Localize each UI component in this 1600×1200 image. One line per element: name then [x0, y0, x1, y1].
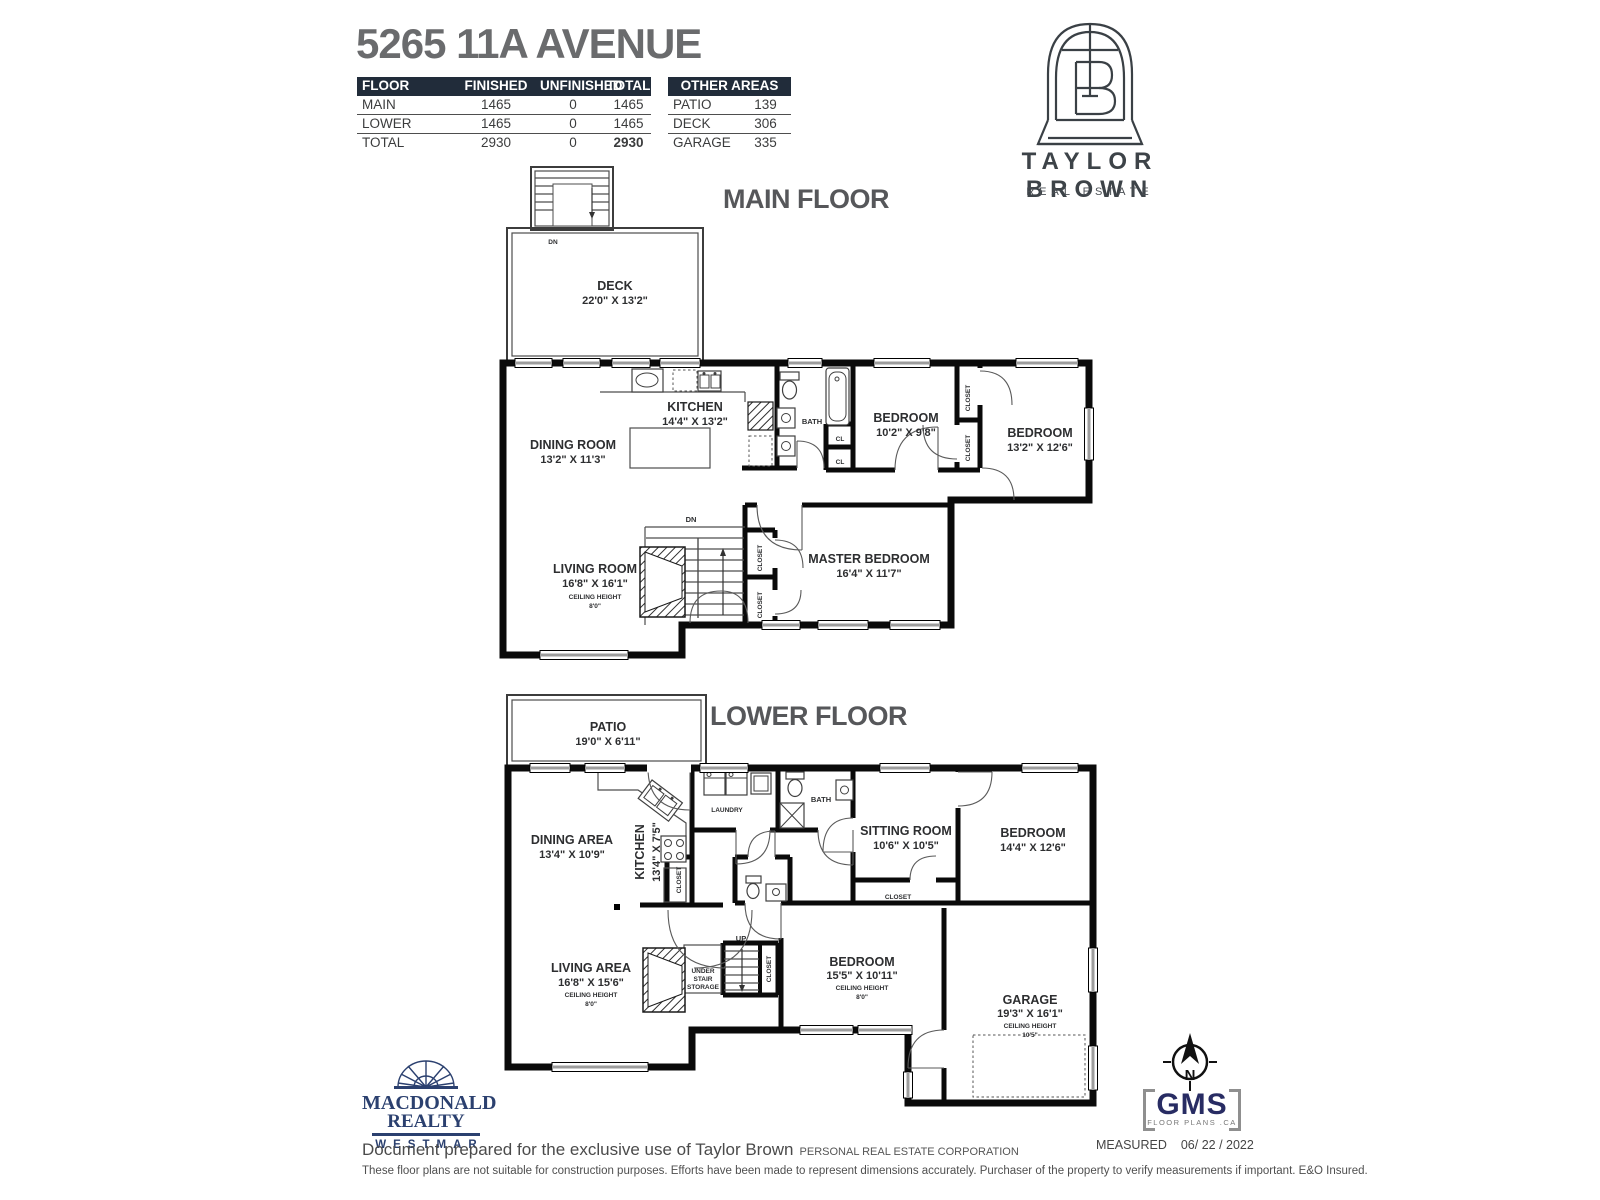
gms-name: GMS — [1147, 1089, 1237, 1121]
gms-bracket-left — [1143, 1089, 1155, 1131]
lower-interior-walls — [640, 768, 1093, 1103]
dining-room-dims: 13'2" X 11'3" — [540, 454, 605, 466]
closet-label: CLOSET — [965, 385, 972, 411]
main-windows — [515, 359, 1094, 660]
master-bedroom-dims: 16'4" X 11'7" — [836, 568, 901, 580]
table-row: MAIN 1465 0 1465 — [357, 96, 651, 115]
sitting-room-dims: 10'6" X 10'5" — [873, 840, 939, 852]
deck-label: DECK — [597, 279, 632, 293]
garage-door-area — [973, 1035, 1085, 1097]
patio-label: PATIO — [590, 720, 627, 734]
taylor-brown-logo-icon — [1020, 12, 1220, 152]
macdonald-rule — [372, 1133, 480, 1136]
bedroom-dims: 10'2" X 9'8" — [876, 427, 936, 439]
closet-label: CL — [836, 459, 845, 466]
main-interior-walls — [742, 363, 980, 625]
main-outer-walls — [503, 363, 1089, 655]
gms-logo: GMS FLOOR PLANS .CA — [1147, 1089, 1237, 1135]
under-stair-label: UNDER — [691, 968, 714, 975]
lower-windows — [530, 764, 1098, 1099]
deck-dims: 22'0" X 13'2" — [582, 295, 648, 307]
master-bedroom-label: MASTER BEDROOM — [808, 552, 930, 566]
fireplace-icon — [643, 948, 685, 1012]
ceiling-height-label: CEILING HEIGHT — [836, 985, 889, 992]
closet-label: CLOSET — [757, 592, 764, 618]
fireplace-icon — [640, 547, 685, 617]
closet-label: CLOSET — [766, 956, 773, 982]
ceiling-height-label: CEILING HEIGHT — [1004, 1023, 1057, 1030]
dining-area-dims: 13'4" X 10'9" — [539, 849, 605, 861]
north-compass-icon: N — [1160, 1025, 1222, 1097]
gms-bracket-right — [1229, 1089, 1241, 1131]
closet-label: CLOSET — [676, 867, 683, 893]
table-row: DECK 306 — [668, 115, 791, 134]
floor-plan-document: 5265 11A AVENUE FLOOR FINISHED UNFINISHE… — [0, 0, 1600, 1200]
bath-label: BATH — [802, 417, 822, 426]
measured-date: MEASURED06/ 22 / 2022 — [1096, 1138, 1254, 1152]
bedroom-dims: 14'4" X 12'6" — [1000, 842, 1066, 854]
laundry-label: LAUNDRY — [711, 807, 743, 814]
garage-label: GARAGE — [1003, 993, 1058, 1007]
other-areas-table-header: OTHER AREAS — [668, 77, 791, 96]
bedroom-label: BEDROOM — [1007, 426, 1072, 440]
kitchen-label: KITCHEN — [633, 824, 647, 880]
sitting-room-label: SITTING ROOM — [860, 824, 952, 838]
table-row: LOWER 1465 0 1465 — [357, 115, 651, 134]
macdonald-fan-icon — [362, 1057, 490, 1089]
main-floor-plan: DN DECK 22'0" X 13'2" KITCHEN 14'4" X 13… — [490, 160, 1110, 665]
living-room-dims: 16'8" X 16'1" — [562, 578, 628, 590]
disclaimer-line: These floor plans are not suitable for c… — [362, 1165, 1368, 1177]
kitchen-dims: 13'4" X 7'5" — [651, 822, 663, 882]
gms-subtitle: FLOOR PLANS .CA — [1147, 1118, 1237, 1127]
patio-dims: 19'0" X 6'11" — [575, 736, 640, 748]
table-row: GARAGE 335 — [668, 134, 791, 152]
svg-text:N: N — [1185, 1067, 1196, 1084]
page-title: 5265 11A AVENUE — [356, 20, 701, 68]
living-room-label: LIVING ROOM — [553, 562, 637, 576]
ceiling-height-value: 10'5" — [1022, 1032, 1037, 1039]
ceiling-height-value: 8'0" — [585, 1001, 597, 1008]
closet-label: CLOSET — [965, 435, 972, 461]
ceiling-height-label: CEILING HEIGHT — [569, 594, 622, 601]
closet-label: CL — [836, 436, 845, 443]
ceiling-height-value: 8'0" — [856, 994, 868, 1001]
bath-label: BATH — [811, 795, 831, 804]
prepared-for-line: Document prepared for the exclusive use … — [362, 1140, 1019, 1160]
garage-dims: 19'3" X 16'1" — [997, 1008, 1063, 1020]
macdonald-realty-logo: MACDONALD REALTY WESTMAR — [362, 1057, 490, 1151]
prepared-note: PERSONAL REAL ESTATE CORPORATION — [800, 1146, 1019, 1158]
under-stair-label: STAIR — [693, 976, 712, 983]
living-area-label: LIVING AREA — [551, 961, 631, 975]
dining-area-label: DINING AREA — [531, 833, 613, 847]
under-stair-label: STORAGE — [687, 984, 720, 991]
macdonald-line2: REALTY — [362, 1113, 490, 1131]
dining-room-label: DINING ROOM — [530, 438, 616, 452]
ceiling-height-value: 8'0" — [589, 603, 601, 610]
ceiling-height-label: CEILING HEIGHT — [565, 992, 618, 999]
table-row: PATIO 139 — [668, 96, 791, 115]
bedroom-label: BEDROOM — [1000, 826, 1065, 840]
closet-label: CLOSET — [757, 545, 764, 571]
bedroom-label: BEDROOM — [873, 411, 938, 425]
other-areas-table: OTHER AREAS PATIO 139 DECK 306 GARAGE 33… — [668, 77, 791, 152]
stairs-up-label: UP — [736, 934, 746, 943]
kitchen-dims: 14'4" X 13'2" — [662, 416, 728, 428]
table-row: TOTAL 2930 0 2930 — [357, 134, 651, 152]
bedroom-dims: 15'5" X 10'11" — [826, 970, 897, 982]
kitchen-label: KITCHEN — [667, 400, 723, 414]
stairs-dn-label: DN — [686, 515, 697, 524]
bedroom-dims: 13'2" X 12'6" — [1007, 442, 1073, 454]
floor-area-table-header: FLOOR FINISHED UNFINISHED TOTAL — [357, 77, 651, 96]
lower-door-arcs — [648, 768, 992, 1068]
living-area-dims: 16'8" X 15'6" — [558, 977, 624, 989]
deck-stairs-dn-label: DN — [548, 239, 558, 246]
lower-kitchen-fixtures — [598, 771, 771, 910]
lower-floor-plan: PATIO 19'0" X 6'11" DINING AREA 13'4" X … — [490, 670, 1140, 1115]
bedroom-label: BEDROOM — [829, 955, 894, 969]
floor-area-table: FLOOR FINISHED UNFINISHED TOTAL MAIN 146… — [357, 77, 651, 152]
closet-label: CLOSET — [885, 894, 911, 901]
deck-outline — [507, 167, 703, 361]
